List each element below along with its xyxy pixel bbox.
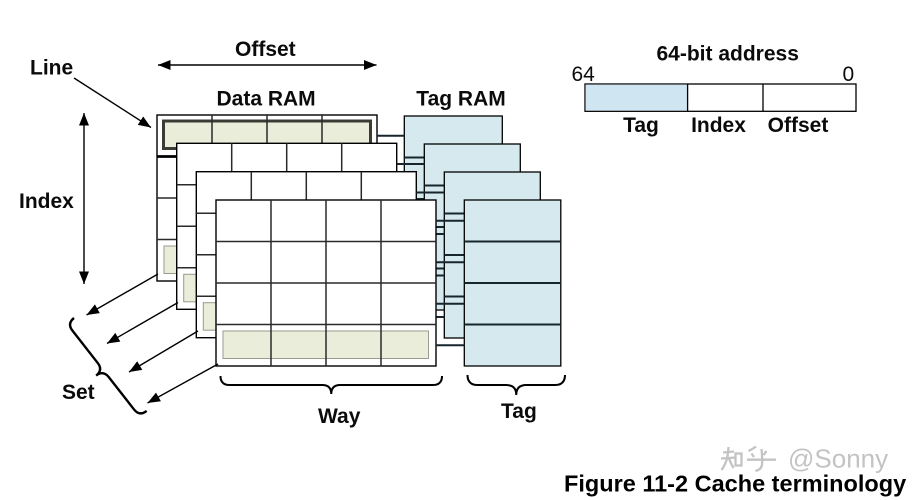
svg-text:Tag RAM: Tag RAM: [416, 88, 505, 111]
svg-text:Way: Way: [318, 405, 361, 428]
svg-text:Offset: Offset: [768, 114, 829, 137]
svg-text:Index: Index: [691, 114, 746, 137]
svg-text:Set: Set: [62, 381, 95, 404]
svg-text:@Sonny: @Sonny: [788, 444, 888, 474]
svg-text:Offset: Offset: [235, 38, 296, 61]
svg-text:Figure 11-2 Cache terminology: Figure 11-2 Cache terminology: [564, 471, 906, 497]
svg-text:Tag: Tag: [501, 400, 537, 423]
svg-text:64: 64: [572, 63, 596, 86]
svg-text:Index: Index: [19, 190, 74, 213]
svg-text:Data RAM: Data RAM: [217, 88, 316, 111]
svg-text:Tag: Tag: [623, 114, 659, 137]
svg-text:0: 0: [843, 63, 855, 86]
svg-text:Line: Line: [30, 57, 73, 80]
svg-text:64-bit address: 64-bit address: [657, 43, 799, 66]
